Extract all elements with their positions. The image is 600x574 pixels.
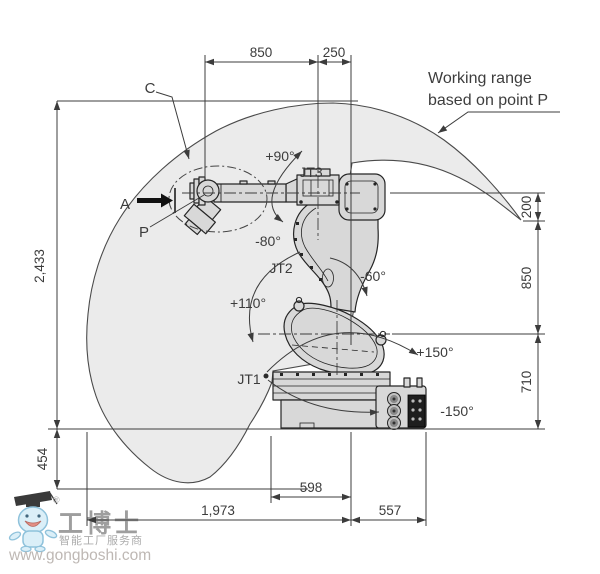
- dim-label-right-710: 710: [519, 371, 534, 394]
- arm-tube-nub-1: [240, 181, 247, 184]
- working-range-leader: [438, 112, 560, 133]
- mascot-arm-right: [44, 529, 57, 539]
- base-pedestal: [281, 400, 390, 428]
- connector-pin-2: [417, 378, 422, 387]
- dim-label-top-850: 850: [250, 45, 273, 60]
- diagram-canvas: ® 工博士 智能工厂服务商 www.gongboshi.com: [0, 0, 600, 574]
- dim-label-top-250: 250: [323, 45, 346, 60]
- jt1-label: JT1: [237, 371, 261, 387]
- mascot-eye-left: [25, 514, 28, 517]
- working-range-note-line2: based on point P: [428, 92, 548, 109]
- angle-label-jt3-positive: +90°: [265, 148, 294, 164]
- dim-label-bottom-557: 557: [379, 503, 402, 518]
- jt3-label: JT3: [299, 164, 323, 180]
- working-range-note-line1: Working range: [428, 70, 532, 87]
- wrist-hub: [197, 180, 219, 202]
- angle-label-jt1-negative: -150°: [440, 403, 474, 419]
- jt3-housing-bolt-right: [335, 200, 339, 204]
- watermark-url: www.gongboshi.com: [8, 547, 151, 564]
- mascot-body: [23, 531, 43, 547]
- angle-label-jt3-negative: -80°: [255, 233, 281, 249]
- point-c-label: C: [145, 80, 156, 97]
- angle-label-jt2-negative: -60°: [360, 268, 386, 284]
- mascot-head: [19, 507, 48, 533]
- angle-label-jt2-positive: +110°: [230, 295, 266, 311]
- watermark-mascot: [8, 491, 57, 552]
- point-p-label: P: [139, 224, 149, 241]
- dim-label-right-200: 200: [519, 196, 534, 219]
- angle-label-jt1-positive: +150°: [416, 344, 453, 360]
- point-a-label: A: [120, 196, 130, 213]
- arm-tube-nub-2: [268, 181, 275, 184]
- dim-label-bottom-598: 598: [300, 480, 323, 495]
- connector-pin-1: [404, 378, 410, 387]
- connector-sockets: [388, 393, 401, 430]
- watermark-brand: 工博士: [58, 510, 142, 538]
- jt3-housing-bolt-left: [299, 200, 303, 204]
- mascot-eye-right: [37, 514, 40, 517]
- dim-label-right-850: 850: [519, 267, 534, 290]
- mascot-cap-base: [26, 501, 40, 507]
- dim-label-left-2433: 2,433: [32, 249, 47, 283]
- watermark-registered: ®: [53, 495, 60, 505]
- watermark-logo: ® 工博士 智能工厂服务商 www.gongboshi.com: [8, 491, 151, 564]
- connector-terminal-block: [408, 395, 425, 427]
- jt1-arc-dot: [264, 374, 269, 379]
- dim-label-left-454: 454: [35, 447, 50, 470]
- point-c-leader: [156, 92, 189, 159]
- watermark-tagline: 智能工厂服务商: [59, 533, 143, 547]
- robot-working-range-diagram: ® 工博士 智能工厂服务商 www.gongboshi.com: [0, 0, 600, 574]
- jt2-label: JT2: [269, 260, 293, 276]
- dim-label-bottom-1973: 1,973: [201, 503, 235, 518]
- mascot-arm-left: [8, 531, 21, 542]
